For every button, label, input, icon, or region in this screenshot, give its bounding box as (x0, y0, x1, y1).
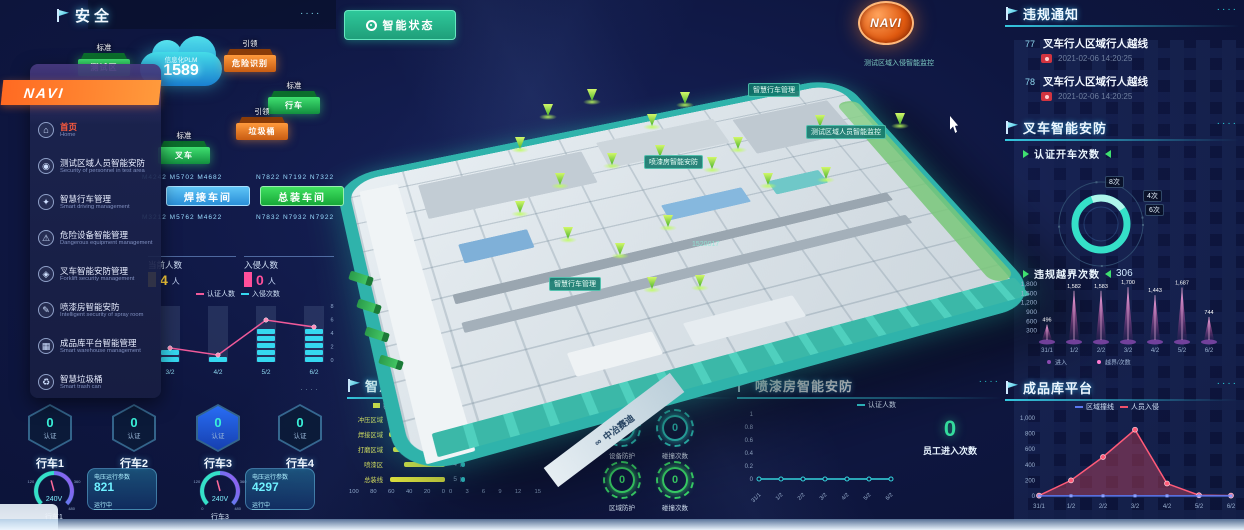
map-pin-6[interactable] (732, 137, 744, 152)
svg-text:6: 6 (330, 318, 333, 324)
stat-label: 当前人数 (148, 259, 236, 271)
menu-banner: NAVI (1, 80, 162, 105)
voltage-gauge-2: 0120240360480240V行车3 (190, 466, 250, 524)
crossing-label-row: 违规越界次数 306 (1023, 266, 1133, 281)
map-building (567, 331, 663, 376)
map-tag-5: 测试区域入侵智能监控 (860, 57, 938, 69)
donut-label-row: 认证开车次数 (1023, 146, 1111, 161)
violation-text: 叉车行人区域行人越线 (1043, 74, 1148, 89)
home-icon: ⌂ (38, 122, 54, 138)
menu-item-4[interactable]: ⚠危险设备智能管理Dangerous equipment management (38, 220, 156, 256)
hex-value: 0 (296, 416, 303, 430)
map-pin-10[interactable] (606, 153, 618, 168)
map-pin-8[interactable] (894, 113, 906, 128)
topbar: 安全 (56, 5, 113, 26)
svg-text:4/2: 4/2 (213, 369, 222, 376)
legend-marker (241, 293, 249, 295)
finished-goods-panel: 成品库平台 ···· 区域撞线 人员入侵 1,00080060040020003… (1005, 378, 1240, 528)
svg-text:1,582: 1,582 (1067, 284, 1081, 290)
stat-value: 0 (256, 274, 264, 287)
svg-text:5/2: 5/2 (1178, 348, 1187, 354)
crane-hex-1: 0认证 (28, 404, 72, 452)
warehouse-icon: ▦ (38, 338, 54, 354)
gauge-svg: 0120240360480240V (190, 466, 250, 516)
violation-id: 78 (1025, 77, 1035, 87)
stat-value: 4 (160, 274, 168, 287)
map-pin-13[interactable] (762, 173, 774, 188)
svg-text:480: 480 (234, 506, 241, 511)
svg-text:900: 900 (1026, 309, 1037, 316)
mouse-cursor (950, 116, 963, 133)
play-icon (1105, 270, 1111, 278)
svg-text:5/2: 5/2 (261, 369, 270, 376)
divider (1005, 25, 1240, 27)
menu-item-2[interactable]: ◉测试区域人员智能安防Security of personnel in test… (38, 148, 156, 184)
status-button[interactable]: 智能状态 (344, 10, 456, 40)
badge-tier: 引领 (224, 38, 276, 49)
menu-item-5[interactable]: ◈叉车智能安防管理Forklift security management (38, 256, 156, 292)
crane-icon: ✦ (38, 194, 54, 210)
svg-text:120: 120 (28, 479, 35, 484)
map-tag-2: 测试区域人员智能监控 (806, 125, 886, 139)
menu-item-sub: Smart warehouse management (60, 348, 141, 355)
violation-text: 叉车行人区域行人越线 (1043, 36, 1148, 51)
badge-name: 叉车 (158, 147, 210, 164)
menu-item-label: 喷漆房智能安防 (60, 302, 143, 312)
grade-badge-4: 引领垃圾桶 (236, 106, 288, 140)
page-title: 安全 (75, 5, 113, 26)
play-icon (1023, 150, 1029, 158)
card-value: 821 (94, 481, 150, 494)
infinity-logo-icon: ∞ (592, 436, 603, 448)
violation-row: 78叉车行人区域行人越线 (1025, 74, 1230, 89)
badge-lip (239, 117, 285, 123)
hex-value: 0 (214, 416, 221, 430)
menu-item-label: 测试区域人员智能安防 (60, 158, 145, 168)
svg-text:300: 300 (1026, 328, 1037, 335)
svg-text:1,000: 1,000 (1020, 416, 1036, 422)
violation-item-2[interactable]: 78叉车行人区域行人越线2021-02-06 14:20:25 (1025, 74, 1230, 101)
card-sub: 运行中 (252, 500, 270, 510)
menu-item-text: 成品库平台智能管理Smart warehouse management (60, 338, 141, 355)
trash-icon: ♻ (38, 374, 54, 390)
menu-item-label: 智慧垃圾桶 (60, 374, 103, 384)
menu-item-text: 喷漆房智能安防Intelligent security of spray roo… (60, 302, 143, 319)
svg-text:6/2: 6/2 (1205, 348, 1214, 354)
svg-text:1,443: 1,443 (1148, 288, 1162, 294)
map-pin-5[interactable] (679, 92, 691, 107)
menu-item-3[interactable]: ✦智慧行车管理Smart driving management (38, 184, 156, 220)
workshop-button-1[interactable]: 焊接车间 (166, 186, 250, 206)
svg-text:360: 360 (74, 479, 81, 484)
svg-text:0: 0 (201, 506, 204, 511)
badge-lip (81, 53, 127, 59)
svg-text:1/2: 1/2 (1070, 348, 1079, 354)
menu-item-sub: Smart driving management (60, 204, 130, 211)
badge-lip (161, 141, 207, 147)
badge-name: 垃圾桶 (236, 123, 288, 140)
navi-logo-label: NAVI (870, 16, 902, 30)
hex-inner: 0认证 (198, 406, 238, 450)
violation-id: 77 (1025, 39, 1035, 49)
crane-hex-4: 0认证 (278, 404, 322, 452)
svg-text:400: 400 (1025, 463, 1036, 469)
map-walkway (432, 277, 1030, 457)
map-plate (334, 77, 1045, 480)
crane-hex-2: 0认证 (112, 404, 156, 452)
map-tag-4: 智慧行车管理 (549, 277, 601, 291)
status-button-label: 智能状态 (383, 17, 435, 33)
navi-logo: NAVI (858, 1, 914, 45)
legend-label: 人员入侵 (1131, 404, 1159, 411)
svg-text:4/2: 4/2 (1163, 504, 1172, 510)
map-pin-19[interactable] (646, 277, 658, 292)
menu-item-1[interactable]: ⌂首页Home (38, 112, 156, 148)
svg-text:600: 600 (1026, 318, 1037, 325)
map-road (359, 184, 475, 465)
bottom-band (0, 519, 1244, 530)
map-pin-12[interactable] (706, 157, 718, 172)
violation-time: 2021-02-06 14:20:25 (1058, 92, 1132, 101)
map-pin-9[interactable] (554, 173, 566, 188)
svg-text:4/2: 4/2 (1151, 348, 1160, 354)
svg-text:0: 0 (1032, 494, 1036, 500)
grade-badge-5: 标准叉车 (158, 130, 210, 164)
divider (1005, 399, 1240, 401)
panel-title: 违规通知 (1023, 4, 1079, 23)
badge-tier: 标准 (78, 42, 130, 53)
crane-name-3: 行车3 (183, 455, 253, 471)
svg-text:6/2: 6/2 (309, 369, 318, 376)
finished-legend: 区域撞线 人员入侵 (1075, 402, 1159, 412)
hex-value: 0 (130, 416, 137, 430)
menu-item-text: 智慧行车管理Smart driving management (60, 194, 130, 211)
svg-text:1,687: 1,687 (1175, 281, 1189, 287)
topbar-strip (88, 0, 336, 29)
crane-card-1: 电压运行参数 821 运行中 (87, 468, 157, 510)
donut-callout-1: 8次 (1105, 176, 1124, 188)
mid-chart-svg: 864203/24/25/26/2 (146, 298, 338, 390)
legend-label: 认证人数 (207, 291, 235, 298)
menu-item-sub: Forklift security management (60, 276, 134, 283)
play-icon (1023, 270, 1029, 278)
menu-item-label: 首页 (60, 122, 77, 132)
menu-item-6[interactable]: ✎喷漆房智能安防Intelligent security of spray ro… (38, 292, 156, 328)
card-value: 4297 (252, 481, 308, 494)
menu-item-text: 智慧垃圾桶Smart trash can (60, 374, 103, 391)
menu-item-label: 叉车智能安防管理 (60, 266, 134, 276)
map-equipment (661, 187, 751, 220)
svg-text:1,500: 1,500 (1021, 290, 1038, 297)
paint-icon: ✎ (38, 302, 54, 318)
workshop-codes: N7832 N7932 N7922 (256, 214, 334, 221)
badge-tier: 标准 (158, 130, 210, 141)
svg-text:496: 496 (1042, 318, 1051, 324)
finished-area-chart: 1,000800600400200031/11/22/23/24/25/26/2 (1007, 410, 1239, 527)
menu-item-7[interactable]: ▦成品库平台智能管理Smart warehouse management (38, 328, 156, 364)
legend-label: 入侵次数 (252, 291, 280, 298)
badge-lip (227, 49, 273, 55)
svg-text:4: 4 (330, 331, 333, 337)
svg-text:5/2: 5/2 (1195, 504, 1204, 510)
violation-meta: 2021-02-06 14:20:25 (1041, 54, 1230, 63)
panel-dots[interactable]: ···· (1217, 378, 1238, 389)
camera-icon (1041, 54, 1052, 63)
menu-item-text: 首页Home (60, 122, 77, 139)
menu-brand: NAVI (23, 85, 65, 101)
svg-text:600: 600 (1025, 447, 1036, 453)
svg-text:240V: 240V (46, 496, 63, 503)
crane-auth-panel: 0认证行车10认证行车20认证行车30认证行车4 012024036048024… (8, 398, 343, 528)
camera-icon (1041, 92, 1052, 101)
stat-unit: 人 (172, 276, 180, 287)
crane-name-1: 行车1 (15, 455, 85, 471)
card-sub: 运行中 (94, 500, 112, 510)
svg-text:31/1: 31/1 (1041, 348, 1053, 354)
violation-time: 2021-02-06 14:20:25 (1058, 54, 1132, 63)
workshop-button-2[interactable]: 总装车间 (260, 186, 344, 206)
svg-text:3/2: 3/2 (1124, 348, 1133, 354)
legend-marker (1120, 406, 1128, 408)
person-icon (244, 272, 252, 287)
nav-menu: ⌂首页Home◉测试区域人员智能安防Security of personnel … (30, 64, 161, 398)
menu-item-sub: Intelligent security of spray room (60, 312, 143, 319)
map-pin-1[interactable] (514, 137, 526, 152)
divider (1005, 139, 1240, 141)
svg-text:6/2: 6/2 (1227, 504, 1236, 510)
violations-panel: 违规通知 ···· 77叉车行人区域行人越线2021-02-06 14:20:2… (1005, 4, 1240, 116)
map-pin-14[interactable] (820, 167, 832, 182)
legend-marker (1075, 406, 1083, 408)
map-pin-3[interactable] (586, 89, 598, 104)
menu-item-text: 危险设备智能管理Dangerous equipment management (60, 230, 153, 247)
crossing-spike-chart: 1,8001,5001,20090060030049631/11,5821/21… (1007, 278, 1239, 375)
menu-item-label: 智慧行车管理 (60, 194, 130, 204)
hex-inner: 0认证 (280, 406, 320, 450)
crane-hex-3: 0认证 (196, 404, 240, 452)
map-tag-6: 1520017 (688, 240, 723, 249)
svg-text:1,583: 1,583 (1094, 284, 1108, 290)
panel-dots[interactable]: ···· (1217, 118, 1238, 129)
legend-label: 区域撞线 (1086, 404, 1114, 411)
panel-dots[interactable]: ···· (1217, 4, 1238, 15)
hex-label: 认证 (294, 430, 307, 440)
current-people-stat: 当前人数 4 人 (148, 256, 236, 292)
svg-text:8: 8 (330, 304, 333, 310)
map-equipment (458, 229, 534, 263)
badge-lip (271, 91, 317, 97)
crossing-label: 违规越界次数 (1034, 266, 1100, 281)
menu-list: ⌂首页Home◉测试区域人员智能安防Security of personnel … (38, 112, 156, 400)
menu-item-text: 叉车智能安防管理Forklift security management (60, 266, 134, 283)
svg-text:240V: 240V (212, 496, 229, 503)
map-tag-3: 喷漆房智能安防 (644, 155, 703, 169)
svg-text:进入: 进入 (1055, 359, 1067, 367)
flag-icon (1005, 7, 1018, 20)
warning-icon: ⚠ (38, 230, 54, 246)
menu-item-sub: Dangerous equipment management (60, 240, 153, 247)
workshop-codes: N7822 N7192 N7322 (256, 174, 334, 181)
hex-label: 认证 (212, 430, 225, 440)
forklift-panel: 叉车智能安防 ···· 认证开车次数 8次4次6次 违规越界次数 306 1,8… (1005, 118, 1240, 376)
hex-inner: 0认证 (114, 406, 154, 450)
map-pin-2[interactable] (542, 104, 554, 119)
menu-item-sub: Security of personnel in test area (60, 168, 145, 175)
svg-text:1,700: 1,700 (1121, 280, 1135, 286)
hex-inner: 0认证 (30, 406, 70, 450)
grade-badge-2: 引领危险识别 (224, 38, 276, 72)
flag-icon (1005, 381, 1018, 394)
svg-text:1,800: 1,800 (1021, 281, 1038, 288)
badge-tier: 引领 (236, 106, 288, 117)
flag-icon (56, 9, 69, 22)
intrusion-people-stat: 入侵人数 0 人 (244, 256, 334, 292)
svg-text:744: 744 (1204, 310, 1213, 316)
donut-callout-2: 4次 (1143, 190, 1162, 202)
badge-tier: 标准 (268, 80, 320, 91)
map-pin-18[interactable] (662, 215, 674, 230)
hex-value: 0 (46, 416, 53, 430)
svg-text:越界/次数: 越界/次数 (1105, 359, 1131, 367)
svg-text:2/2: 2/2 (1097, 348, 1106, 354)
svg-text:31/1: 31/1 (1033, 504, 1045, 510)
topbar-pagination-dots[interactable]: ···· (300, 8, 321, 19)
donut-callout-3: 6次 (1145, 204, 1164, 216)
map-aisle (461, 215, 912, 333)
svg-text:480: 480 (68, 506, 75, 511)
map-pin-16[interactable] (562, 227, 574, 242)
svg-text:3/2: 3/2 (1131, 504, 1140, 510)
spike-svg: 1,8001,5001,20090060030049631/11,5821/21… (1007, 278, 1239, 370)
svg-text:800: 800 (1025, 432, 1036, 438)
factory-map: 智慧行车管理测试区域人员智能监控喷漆房智能安防智慧行车管理测试区域入侵智能监控1… (330, 10, 1010, 525)
area-svg: 1,000800600400200031/11/22/23/24/25/26/2 (1007, 410, 1239, 522)
donut-label: 认证开车次数 (1034, 146, 1100, 161)
svg-text:1/2: 1/2 (1067, 504, 1076, 510)
map-pin-17[interactable] (614, 243, 626, 258)
violation-row: 77叉车行人区域行人越线 (1025, 36, 1230, 51)
legend-marker (196, 293, 204, 295)
menu-item-8[interactable]: ♻智慧垃圾桶Smart trash can (38, 364, 156, 400)
svg-text:120: 120 (194, 479, 201, 484)
badge-name: 危险识别 (224, 55, 276, 72)
violation-item-1[interactable]: 77叉车行人区域行人越线2021-02-06 14:20:25 (1025, 36, 1230, 63)
crane-card-2: 电压运行参数 4297 运行中 (245, 468, 315, 510)
hex-label: 认证 (128, 430, 141, 440)
target-icon (366, 20, 377, 31)
play-icon (1105, 150, 1111, 158)
menu-item-sub: Smart trash can (60, 384, 103, 391)
flag-icon (1005, 121, 1018, 134)
dashboard-screen: 智慧行车管理测试区域人员智能监控喷漆房智能安防智慧行车管理测试区域入侵智能监控1… (0, 0, 1244, 530)
svg-text:0: 0 (330, 358, 333, 364)
violation-meta: 2021-02-06 14:20:25 (1041, 92, 1230, 101)
map-pin-20[interactable] (694, 275, 706, 290)
menu-item-label: 危险设备智能管理 (60, 230, 153, 240)
hex-label: 认证 (44, 430, 57, 440)
svg-text:2/2: 2/2 (1099, 504, 1108, 510)
menu-item-text: 测试区域人员智能安防Security of personnel in test … (60, 158, 145, 175)
menu-item-label: 成品库平台智能管理 (60, 338, 141, 348)
map-tag-1: 智慧行车管理 (748, 83, 800, 97)
stat-label: 入侵人数 (244, 259, 334, 271)
map-pin-15[interactable] (514, 201, 526, 216)
people-icon: ◉ (38, 158, 54, 174)
mid-chart-dots[interactable]: ···· (300, 384, 320, 394)
panel-title: 成品库平台 (1023, 378, 1093, 397)
stat-unit: 人 (268, 276, 276, 287)
svg-text:3/2: 3/2 (165, 369, 174, 376)
forklift-icon: ◈ (38, 266, 54, 282)
svg-text:1,200: 1,200 (1021, 300, 1038, 307)
map-building (418, 151, 597, 219)
map-pin-4[interactable] (646, 114, 658, 129)
svg-text:200: 200 (1025, 478, 1036, 484)
people-trend-chart: 864203/24/25/26/2 (146, 298, 338, 395)
svg-text:2: 2 (330, 345, 333, 351)
crossing-value: 306 (1116, 268, 1133, 279)
panel-title: 叉车智能安防 (1023, 118, 1107, 137)
menu-item-sub: Home (60, 132, 77, 139)
